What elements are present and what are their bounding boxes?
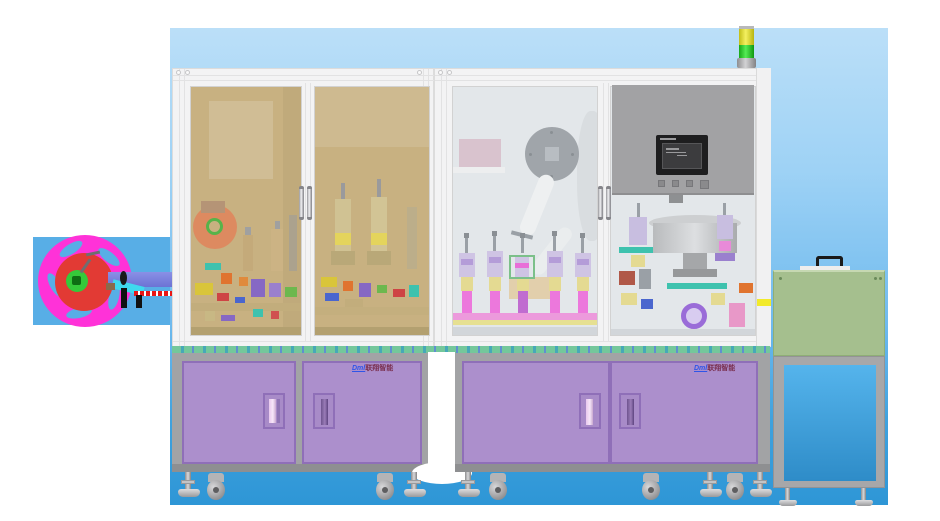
left-window-1 xyxy=(190,86,302,336)
left-cabinet: Dml联翔智能 xyxy=(172,353,428,472)
right-window-1 xyxy=(452,86,598,336)
guide-arm xyxy=(518,172,557,237)
purple-wheel xyxy=(681,303,707,329)
panel-button[interactable] xyxy=(658,180,665,187)
panel-button[interactable] xyxy=(672,180,679,187)
brand-logo: Dml联翔智能 xyxy=(694,365,735,373)
stand-panel xyxy=(784,365,876,481)
background-cutout xyxy=(428,352,455,470)
door-handle xyxy=(299,186,304,220)
right-cabinet: Dml联翔智能 xyxy=(455,353,770,472)
door-handle xyxy=(598,186,603,220)
panel-button[interactable] xyxy=(700,180,709,189)
tower-light-base xyxy=(737,58,756,68)
door-handle-recess[interactable] xyxy=(313,393,335,429)
cabinet-top-strip xyxy=(172,346,770,353)
green-box-body xyxy=(773,270,885,356)
machine-render: Dml联翔智能 Dml联翔智能 xyxy=(0,0,940,521)
hmi-display[interactable] xyxy=(656,135,708,175)
green-box-stand xyxy=(773,356,885,488)
left-window-2 xyxy=(314,86,430,336)
control-panel xyxy=(612,85,754,195)
door-handle xyxy=(606,186,611,220)
door-handle-recess[interactable] xyxy=(579,393,601,429)
brand-logo: Dml联翔智能 xyxy=(352,365,393,373)
tower-light-yellow xyxy=(739,29,754,45)
door-handle-recess[interactable] xyxy=(619,393,641,429)
tower-light-green xyxy=(739,45,754,58)
door-handle-recess[interactable] xyxy=(263,393,285,429)
panel-button[interactable] xyxy=(686,180,693,187)
conveyor xyxy=(453,313,598,320)
yellow-connector xyxy=(757,299,771,306)
door-handle xyxy=(307,186,312,220)
